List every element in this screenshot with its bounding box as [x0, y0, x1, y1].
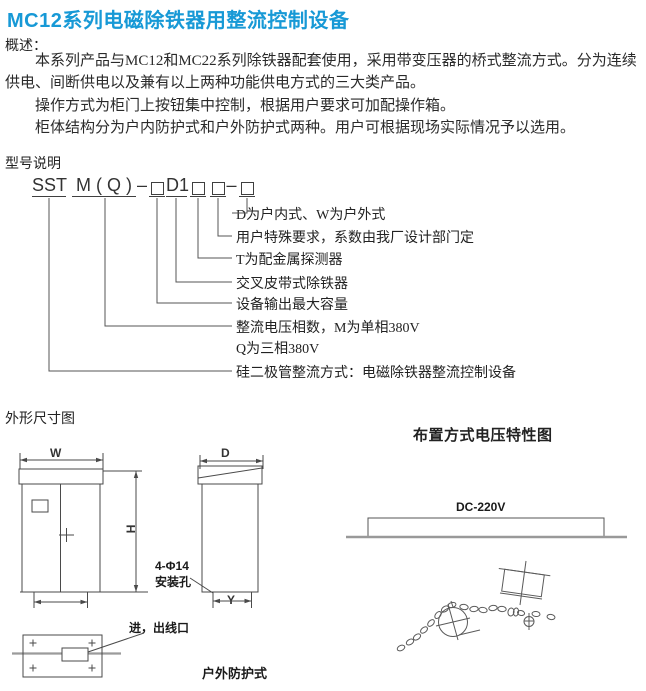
blank-box — [241, 182, 254, 195]
model-tree-label: 用户特殊要求，系数由我厂设计部门定 — [236, 227, 474, 247]
blank-box — [212, 182, 225, 195]
model-tree-label: 整流电压相数，M为单相380V — [236, 317, 420, 337]
model-tree-label: 设备输出最大容量 — [236, 294, 348, 314]
model-code-box — [149, 180, 165, 197]
bottom-view-drawing — [12, 633, 144, 677]
model-tree-label: Q为三相380V — [236, 338, 319, 358]
outdoor-type-caption: 户外防护式 — [202, 663, 267, 682]
blank-box — [192, 182, 205, 195]
dim-label-y: Y — [224, 593, 238, 607]
model-tree-lines — [49, 198, 247, 371]
dim-label-w: W — [50, 446, 61, 460]
blank-box — [151, 182, 164, 195]
overview-paragraph: 本系列产品与MC12和MC22系列除铁器配套使用，采用带变压器的桥式整流方式。分… — [5, 50, 643, 95]
model-code-seg-mq: M ( Q ) — [72, 175, 136, 197]
mounting-hole-label: 4-Φ14 — [155, 559, 189, 573]
model-code-box — [239, 180, 255, 197]
model-tree-label: 硅二极管整流方式：电磁除铁器整流控制设备 — [236, 362, 516, 382]
dim-label-d: D — [221, 446, 230, 460]
layout-chart-heading: 布置方式电压特性图 — [413, 424, 553, 445]
cable-port-label: 进，出线口 — [129, 619, 189, 636]
side-view-drawing — [190, 455, 263, 608]
dim-label-h: H — [123, 525, 137, 534]
overview-paragraph: 柜体结构分为户内防护式和户外防护式两种。用户可根据现场实际情况予以选用。 — [5, 117, 643, 139]
dimensions-heading: 外形尺寸图 — [5, 408, 75, 428]
model-code-dash: – — [226, 175, 237, 196]
model-tree-label: D为户内式、W为户外式 — [236, 204, 385, 224]
model-heading: 型号说明 — [5, 153, 61, 173]
front-view-arrowheads — [20, 458, 138, 604]
model-code-dash: – — [137, 175, 147, 196]
document-page: MC12系列电磁除铁器用整流控制设备 概述： 本系列产品与MC12和MC22系列… — [0, 0, 646, 691]
overview-paragraph: 操作方式为柜门上按钮集中控制，根据用户要求可加配操作箱。 — [5, 95, 643, 117]
model-code-box — [210, 180, 226, 197]
arrangement-sketch — [396, 561, 555, 652]
material-pieces — [396, 602, 555, 652]
side-view-arrowheads — [200, 459, 263, 603]
voltage-label: DC-220V — [456, 500, 505, 514]
page-title: MC12系列电磁除铁器用整流控制设备 — [7, 4, 349, 33]
model-code-seg-sst: SST — [32, 175, 66, 197]
model-tree-label: 交叉皮带式除铁器 — [236, 273, 348, 293]
voltage-waveform — [346, 518, 627, 537]
model-code-seg-d1: D1 — [166, 175, 187, 197]
model-code-box — [190, 180, 206, 197]
mounting-hole-label: 安装孔 — [155, 573, 191, 590]
model-tree-label: T为配金属探测器 — [236, 249, 343, 269]
overview-paragraphs: 本系列产品与MC12和MC22系列除铁器配套使用，采用带变压器的桥式整流方式。分… — [5, 50, 643, 140]
